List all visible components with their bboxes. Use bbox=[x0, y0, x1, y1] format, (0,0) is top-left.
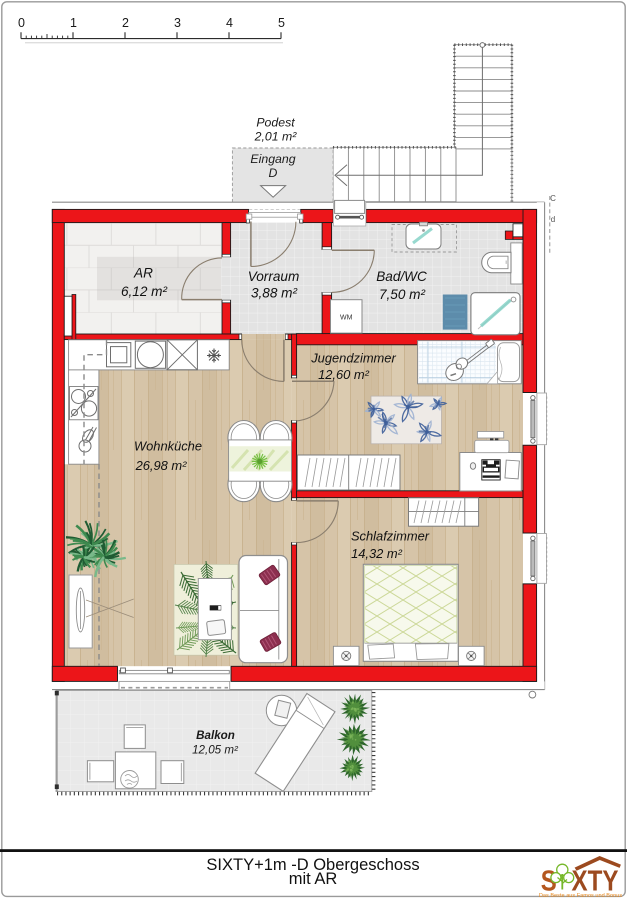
svg-text:C: C bbox=[550, 194, 556, 203]
svg-text:12,60 m²: 12,60 m² bbox=[318, 367, 370, 382]
svg-text:3,88 m²: 3,88 m² bbox=[251, 286, 298, 301]
svg-text:Vorraum: Vorraum bbox=[248, 269, 300, 284]
svg-text:4: 4 bbox=[226, 16, 233, 30]
svg-text:Eingang: Eingang bbox=[250, 152, 295, 166]
svg-text:12,05 m²: 12,05 m² bbox=[192, 744, 239, 757]
svg-text:1: 1 bbox=[70, 16, 77, 30]
svg-text:26,98 m²: 26,98 m² bbox=[135, 458, 188, 473]
svg-text:AR: AR bbox=[133, 266, 153, 281]
svg-text:mit AR: mit AR bbox=[289, 870, 338, 888]
svg-text:2: 2 bbox=[122, 16, 129, 30]
svg-text:2,01 m²: 2,01 m² bbox=[254, 130, 298, 144]
svg-text:Balkon: Balkon bbox=[196, 729, 235, 742]
svg-text:7,50 m²: 7,50 m² bbox=[379, 287, 426, 302]
svg-text:Schlafzimmer: Schlafzimmer bbox=[351, 529, 430, 544]
svg-text:WM: WM bbox=[340, 315, 353, 322]
svg-text:Wohnküche: Wohnküche bbox=[134, 439, 202, 454]
svg-text:Podest: Podest bbox=[256, 116, 295, 130]
svg-text:0: 0 bbox=[18, 16, 25, 30]
svg-text:D: D bbox=[269, 166, 278, 180]
svg-text:Das Beste aus Famos und Bonus: Das Beste aus Famos und Bonus bbox=[539, 893, 623, 899]
svg-text:Bad/WC: Bad/WC bbox=[376, 269, 427, 284]
svg-text:Jugendzimmer: Jugendzimmer bbox=[310, 351, 396, 366]
svg-text:3: 3 bbox=[174, 16, 181, 30]
svg-text:d: d bbox=[551, 215, 555, 224]
svg-text:6,12 m²: 6,12 m² bbox=[121, 284, 168, 299]
svg-text:5: 5 bbox=[278, 16, 285, 30]
svg-text:14,32 m²: 14,32 m² bbox=[351, 546, 403, 561]
